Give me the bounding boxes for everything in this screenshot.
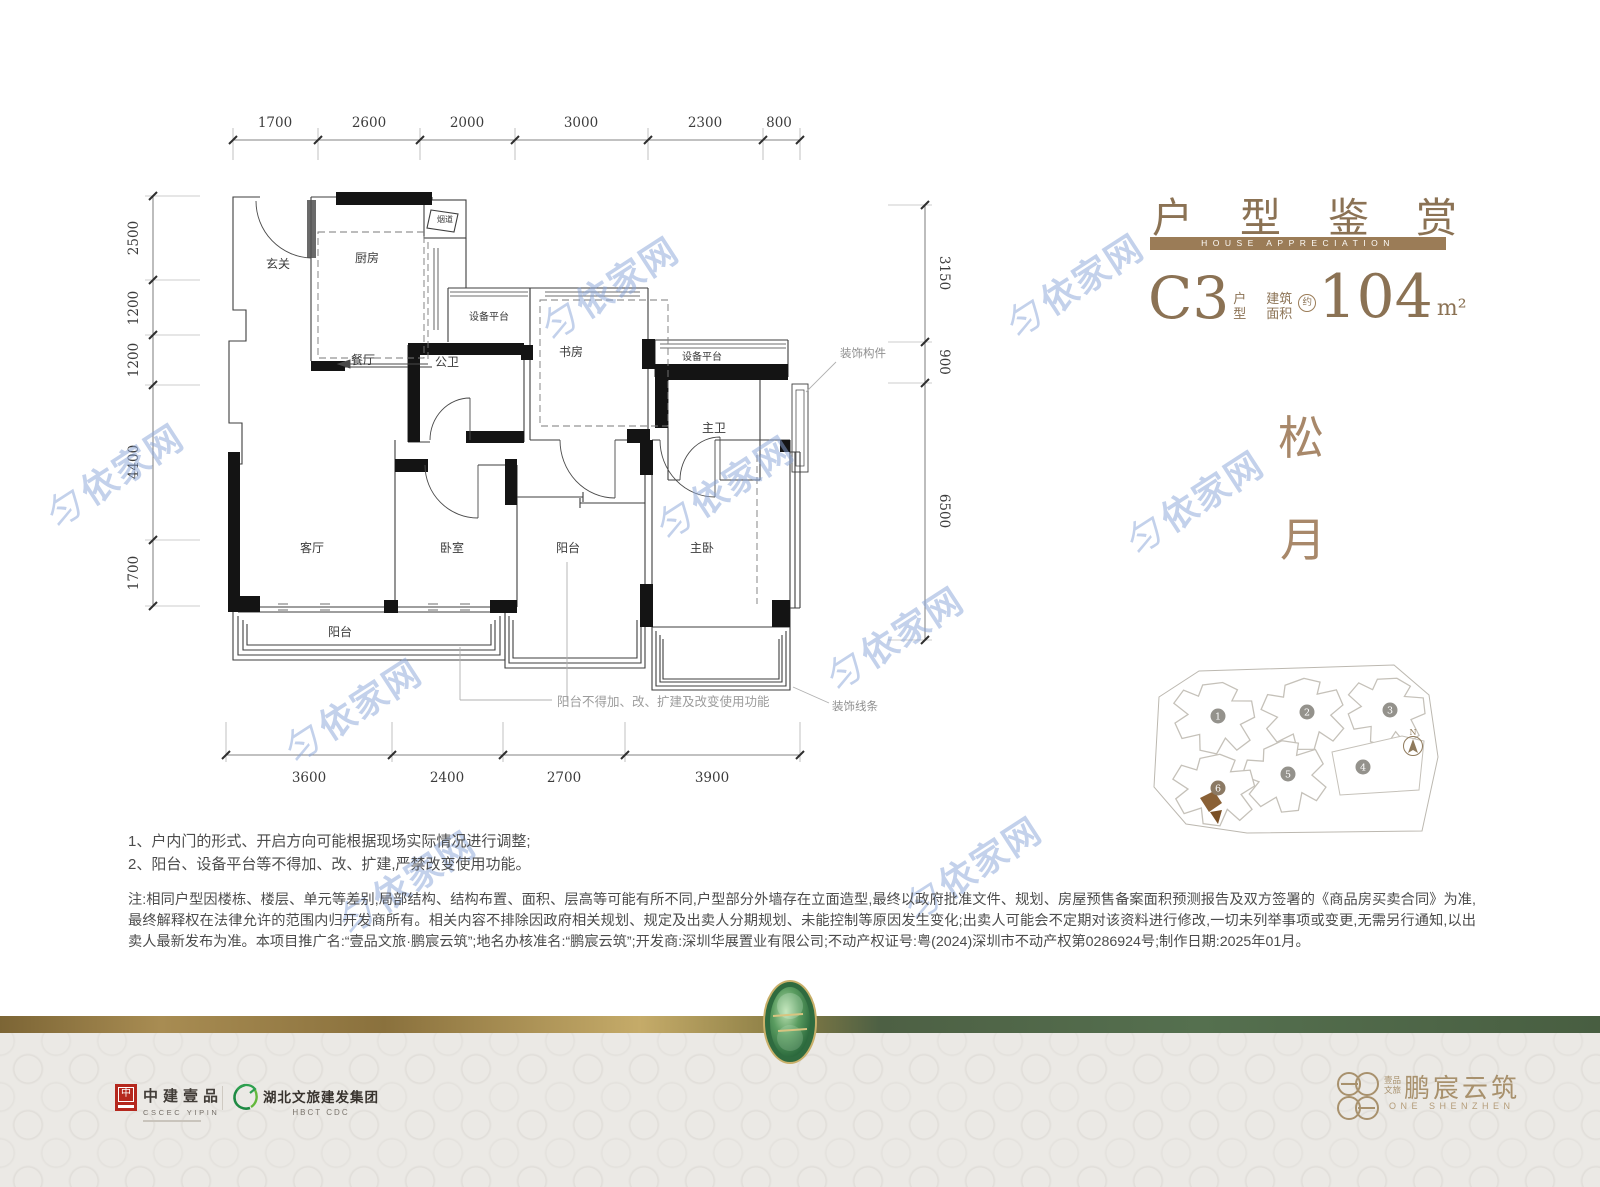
site-building-3: 3 bbox=[1387, 706, 1393, 717]
hbct-subtitle: HBCT CDC bbox=[263, 1108, 379, 1117]
brand-logo-icon bbox=[1336, 1070, 1380, 1122]
theme-char-2: 月 bbox=[1280, 504, 1326, 570]
cscec-subtitle: CSCEC YIPIN bbox=[143, 1108, 223, 1117]
hbct-block: 湖北文旅建发集团 HBCT CDC bbox=[263, 1086, 379, 1117]
unit-label-top: 户 bbox=[1233, 291, 1246, 306]
cscec-tagline-rule bbox=[143, 1120, 201, 1122]
room-balcony-bottom: 阳台 bbox=[328, 624, 352, 639]
callout-decor-line: 装饰线条 bbox=[832, 699, 878, 713]
notes-paragraph: 注:相同户型因楼栋、楼层、单元等差别,局部结构、结构布置、面积、层高等可能有所不… bbox=[128, 890, 1476, 953]
dim-bottom-3: 2700 bbox=[547, 770, 581, 786]
dim-right-3: 6500 bbox=[936, 494, 952, 528]
room-living: 客厅 bbox=[300, 540, 324, 555]
room-bedroom: 卧室 bbox=[440, 540, 464, 555]
room-flue: 烟道 bbox=[437, 214, 453, 224]
cscec-block: 中建壹品 CSCEC YIPIN bbox=[143, 1085, 223, 1122]
dim-top-3: 2000 bbox=[450, 115, 484, 131]
area-approx-badge: 约 bbox=[1298, 294, 1316, 312]
dimension-labels: 1700 2600 2000 3000 2300 800 2500 1200 1… bbox=[126, 115, 952, 786]
plan-walls bbox=[229, 197, 808, 690]
brand-pre-bottom: 文旅 bbox=[1384, 1086, 1401, 1096]
jade-medallion-icon bbox=[761, 979, 819, 1065]
area-value: 104 bbox=[1318, 269, 1433, 326]
room-balcony-mid: 阳台 bbox=[556, 540, 580, 555]
area-label-top: 建筑 bbox=[1266, 291, 1292, 306]
site-building-1: 1 bbox=[1215, 712, 1221, 723]
dim-bottom-4: 3900 bbox=[695, 770, 729, 786]
brand-name: 鹏宸云筑 bbox=[1404, 1068, 1520, 1105]
footer-logo-divider bbox=[222, 1086, 223, 1110]
room-kitchen: 厨房 bbox=[355, 250, 379, 265]
unit-label-bottom: 型 bbox=[1233, 306, 1246, 321]
page: 1700 2600 2000 3000 2300 800 2500 1200 1… bbox=[0, 0, 1600, 1187]
plan-wall-fills bbox=[228, 192, 790, 627]
page-title: 户型鉴赏 bbox=[1152, 184, 1504, 244]
dimension-lines bbox=[145, 128, 932, 762]
theme-char-1: 松 bbox=[1278, 402, 1324, 468]
dim-top-6: 800 bbox=[766, 115, 792, 131]
hbct-name: 湖北文旅建发集团 bbox=[263, 1086, 379, 1106]
unit-code: C3 bbox=[1148, 271, 1229, 326]
dim-left-3: 1200 bbox=[126, 343, 142, 377]
callout-decor-member: 装饰构件 bbox=[840, 346, 886, 360]
room-bedroom-master: 主卧 bbox=[690, 541, 714, 555]
cscec-name: 中建壹品 bbox=[143, 1085, 223, 1106]
area-label-bottom: 面积 bbox=[1266, 306, 1292, 321]
site-building-2: 2 bbox=[1304, 708, 1310, 719]
notes-list: 1、户内门的形式、开启方向可能根据现场实际情况进行调整; 2、阳台、设备平台等不… bbox=[128, 830, 531, 876]
dim-top-2: 2600 bbox=[352, 115, 386, 131]
room-bath-master: 主卫 bbox=[702, 421, 726, 435]
dim-top-1: 1700 bbox=[258, 115, 292, 131]
site-building-6: 6 bbox=[1215, 784, 1221, 795]
dim-bottom-1: 3600 bbox=[292, 770, 326, 786]
dim-left-5: 1700 bbox=[126, 556, 142, 590]
dim-bottom-2: 2400 bbox=[430, 770, 464, 786]
north-label: N bbox=[1410, 728, 1417, 737]
dim-top-4: 3000 bbox=[564, 115, 598, 131]
site-building-4: 4 bbox=[1360, 763, 1366, 774]
dim-right-2: 900 bbox=[936, 349, 952, 375]
unit-spec: C3 户 型 建筑 面积 约 104 m² bbox=[1148, 268, 1467, 326]
cscec-logo-char: 中 bbox=[118, 1087, 134, 1102]
note-line-1: 1、户内门的形式、开启方向可能根据现场实际情况进行调整; bbox=[128, 830, 531, 853]
room-dining: 餐厅 bbox=[351, 352, 375, 367]
site-plan: 1 2 3 4 5 6 N bbox=[1154, 665, 1438, 833]
dim-left-2: 1200 bbox=[126, 291, 142, 325]
callout-balcony-note: 阳台不得加、改、扩建及改变使用功能 bbox=[557, 694, 770, 709]
dim-left-4: 4400 bbox=[126, 445, 142, 479]
dim-right-1: 3150 bbox=[936, 256, 952, 290]
room-bath-public: 公卫 bbox=[435, 355, 459, 369]
dim-left-1: 2500 bbox=[126, 221, 142, 255]
brand-subtitle: ONE SHENZHEN bbox=[1389, 1101, 1515, 1111]
room-study: 书房 bbox=[559, 344, 583, 359]
site-building-4-shape bbox=[1332, 736, 1424, 795]
title-subtitle-bar: HOUSE APPRECIATION bbox=[1150, 237, 1446, 250]
area-unit: m² bbox=[1437, 299, 1467, 320]
room-entry: 玄关 bbox=[266, 256, 290, 271]
room-equipment1: 设备平台 bbox=[469, 310, 509, 323]
room-equipment2: 设备平台 bbox=[682, 350, 722, 363]
cscec-logo-icon: 中 bbox=[115, 1084, 137, 1111]
brand-pre-block: 壹品 文旅 bbox=[1384, 1076, 1401, 1095]
note-line-2: 2、阳台、设备平台等不得加、改、扩建,严禁改变使用功能。 bbox=[128, 853, 531, 876]
site-building-5: 5 bbox=[1285, 770, 1291, 781]
hbct-logo-icon bbox=[231, 1081, 259, 1112]
dim-top-5: 2300 bbox=[688, 115, 722, 131]
